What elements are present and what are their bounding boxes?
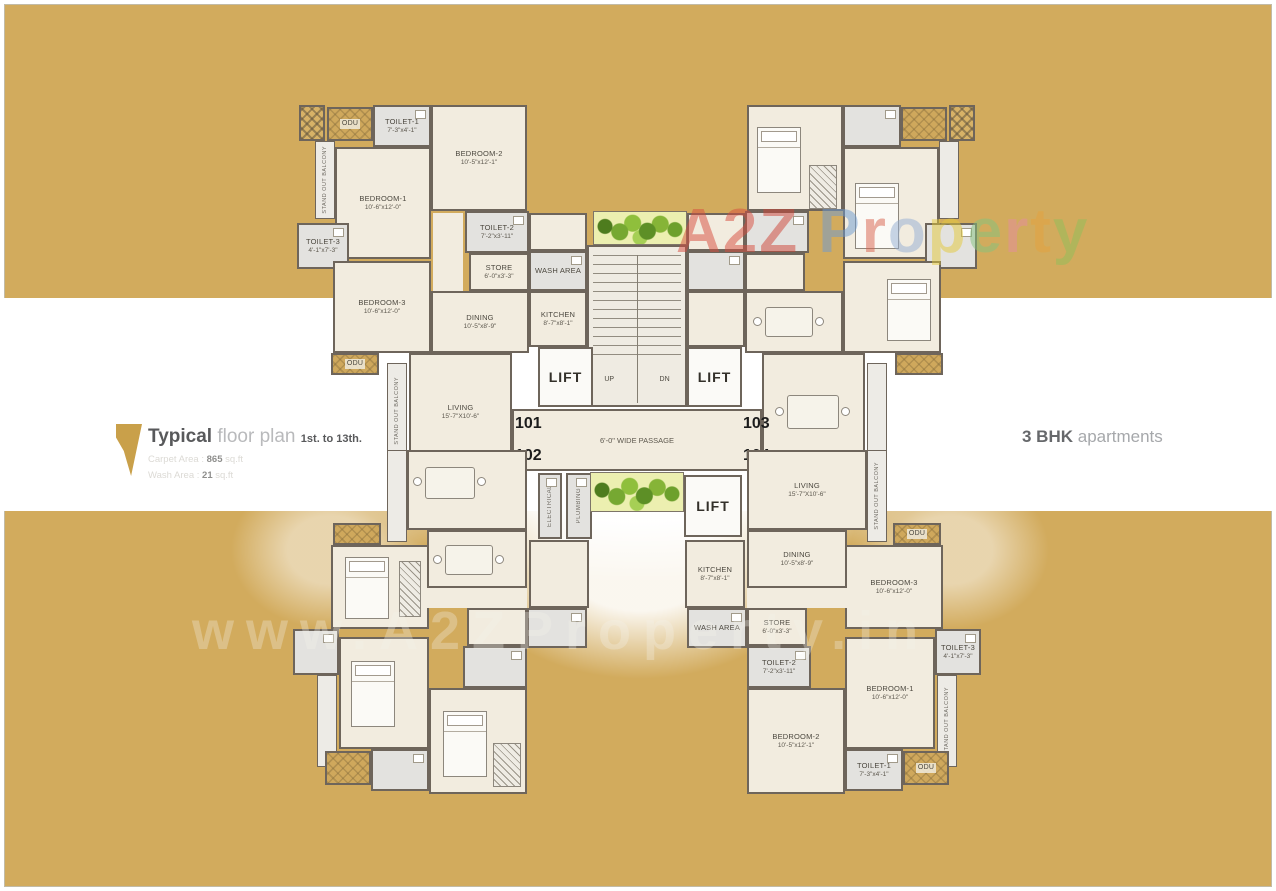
room-103-utility xyxy=(687,213,745,251)
balcony-101-a: STAND OUT BALCONY xyxy=(315,141,335,219)
carpet-area-value: 865 xyxy=(207,454,223,465)
room-label: ODU xyxy=(907,529,927,538)
room-label: KITCHEN xyxy=(698,565,732,575)
room-103-odu xyxy=(901,107,947,141)
room-label: KITCHEN xyxy=(541,310,575,320)
room-104-bedroom-1: BEDROOM-110'-6"x12'-0" xyxy=(845,637,935,749)
room-104-kitchen: KITCHEN8'-7"x8'-1" xyxy=(685,540,745,608)
room-label: STAND OUT BALCONY xyxy=(944,687,950,755)
room-dims: 6'-0"x3'-3" xyxy=(484,273,513,281)
room-101-store: STORE6'-0"x3'-3" xyxy=(469,253,529,291)
room-101-bedroom-1: BEDROOM-110'-6"x12'-0" xyxy=(335,147,431,259)
stair-treads xyxy=(593,255,681,363)
unit-number-101: 101 xyxy=(515,415,542,433)
lift-label: LIFT xyxy=(549,369,583,385)
wash-area-line: Wash Area : 21 sq.ft xyxy=(148,470,233,481)
room-label: LIVING xyxy=(448,403,474,413)
bed xyxy=(443,711,487,777)
room-101-wash-area: WASH AREA xyxy=(529,251,587,291)
chair xyxy=(815,317,824,326)
room-dims: 10'-6"x12'-0" xyxy=(876,588,912,596)
room-104-toilet-2: TOILET-27'-2"x3'-11" xyxy=(747,646,811,688)
balcony-104-a: STAND OUT BALCONY xyxy=(867,450,887,542)
chair xyxy=(413,477,422,486)
room-104-odu: ODU xyxy=(893,523,941,545)
plan-title-bold: Typical xyxy=(148,426,212,447)
balcony-103-b xyxy=(867,363,887,459)
room-dims: 10'-6"x12'-0" xyxy=(365,204,401,212)
table xyxy=(425,467,475,499)
hall-104 xyxy=(747,588,847,608)
room-label: LIVING xyxy=(794,481,820,491)
room-101-bedroom-2: BEDROOM-210'-5"x12'-1" xyxy=(431,105,527,211)
dining-table xyxy=(765,307,813,337)
room-104-living: LIVING15'-7"X10'-6" xyxy=(747,450,867,530)
wardrobe xyxy=(493,743,521,787)
chair xyxy=(433,555,442,564)
room-102-toilet-3 xyxy=(293,629,339,675)
room-102-store xyxy=(467,608,527,646)
room-101-utility xyxy=(529,213,587,251)
chair xyxy=(841,407,850,416)
hall-101 xyxy=(433,213,463,293)
stairs-up-label: UP xyxy=(604,376,614,383)
room-101-toilet-2: TOILET-27'-2"x3'-11" xyxy=(465,211,529,253)
room-104-bedroom-2: BEDROOM-210'-5"x12'-1" xyxy=(747,688,845,794)
room-102-kitchen xyxy=(529,540,589,608)
room-102-odu-2 xyxy=(325,751,371,785)
passage-label: 6'-0" WIDE PASSAGE xyxy=(600,436,674,445)
room-dims: 7'-2"x3'-11" xyxy=(763,668,795,676)
room-dims: 10'-5"x12'-1" xyxy=(778,742,814,750)
room-dims: 7'-2"x3'-11" xyxy=(481,233,513,241)
room-label: DINING xyxy=(466,313,493,323)
lift-bottom: LIFT xyxy=(684,475,742,537)
room-101-kitchen: KITCHEN8'-7"x8'-1" xyxy=(529,291,587,347)
balcony-102-a xyxy=(387,450,407,542)
room-label: ODU xyxy=(916,763,936,772)
room-dims: 10'-6"x12'-0" xyxy=(872,694,908,702)
room-dims: 8'-7"x8'-1" xyxy=(543,320,572,328)
apartments-label: apartments xyxy=(1073,427,1163,446)
electrical-shaft: ELECTRICAL xyxy=(538,473,562,539)
room-102-toilet-2 xyxy=(463,646,527,688)
room-104-toilet-3: TOILET-34'-1"x7'-3" xyxy=(935,629,981,675)
room-104-wash-area: WASH AREA xyxy=(687,608,747,648)
hall-102 xyxy=(427,588,527,608)
bed xyxy=(855,183,899,249)
room-label: BEDROOM-1 xyxy=(866,684,913,694)
room-label: ODU xyxy=(340,119,360,128)
room-dims: 6'-0"x3'-3" xyxy=(762,628,791,636)
chair xyxy=(753,317,762,326)
chair xyxy=(495,555,504,564)
bed xyxy=(351,661,395,727)
room-101-odu-2: ODU xyxy=(331,353,379,375)
plan-title-range: 1st. to 13th. xyxy=(301,433,362,445)
passage: 6'-0" WIDE PASSAGE xyxy=(512,409,762,471)
plumbing-shaft: PLUMBING xyxy=(566,473,592,539)
lift-label: LIFT xyxy=(696,498,730,514)
bhk-label: 3 BHK xyxy=(1022,427,1073,446)
shaft-label: ELECTRICAL xyxy=(547,485,553,527)
room-102-wash-area xyxy=(527,608,587,648)
room-label: TOILET-2 xyxy=(762,658,796,668)
room-label: BEDROOM-1 xyxy=(359,194,406,204)
room-label: TOILET-3 xyxy=(306,237,340,247)
brand-letter: r xyxy=(1004,197,1030,266)
room-label: TOILET-1 xyxy=(857,761,891,771)
chair xyxy=(775,407,784,416)
room-dims: 10'-5"x8'-9" xyxy=(464,323,497,331)
room-102-toilet-1 xyxy=(371,749,429,791)
room-103-store xyxy=(745,253,805,291)
room-dims: 7'-3"x4'-1" xyxy=(859,771,888,779)
room-label: STORE xyxy=(486,263,513,273)
wash-area-unit: sq.ft xyxy=(213,470,234,481)
balcony-103-a xyxy=(939,141,959,219)
room-103-kitchen xyxy=(687,291,745,347)
room-label: BEDROOM-2 xyxy=(772,732,819,742)
room-label: TOILET-3 xyxy=(941,643,975,653)
lift-label: LIFT xyxy=(698,369,732,385)
room-dims: 4'-1"x7'-3" xyxy=(943,653,972,661)
room-101-bedroom-3: BEDROOM-310'-6"x12'-0" xyxy=(333,261,431,353)
lift-top-left: LIFT xyxy=(538,347,593,407)
room-dims: 8'-7"x8'-1" xyxy=(700,575,729,583)
room-dims: 15'-7"X10'-6" xyxy=(788,491,825,499)
room-104-odu-2: ODU xyxy=(903,751,949,785)
room-label: STAND OUT BALCONY xyxy=(322,146,328,214)
brand-letter: y xyxy=(1053,197,1089,266)
floor-plan: ODU TOILET-17'-3"x4'-1" BEDROOM-210'-5"x… xyxy=(287,95,987,795)
chair xyxy=(477,477,486,486)
lift-top-right: LIFT xyxy=(687,347,742,407)
room-104-toilet-1: TOILET-17'-3"x4'-1" xyxy=(845,749,903,791)
unit-number-103: 103 xyxy=(743,415,770,433)
balcony-101-b: STAND OUT BALCONY xyxy=(387,363,407,459)
carpet-area-line: Carpet Area : 865 sq.ft xyxy=(148,454,243,465)
wardrobe xyxy=(809,165,837,209)
bed xyxy=(757,127,801,193)
wash-area-label: Wash Area : xyxy=(148,470,202,481)
stairs-dn-label: DN xyxy=(660,376,670,383)
duct-hatch xyxy=(949,105,975,141)
room-label: STAND OUT BALCONY xyxy=(394,377,400,445)
dining-table xyxy=(445,545,493,575)
room-104-store: STORE6'-0"x3'-3" xyxy=(747,608,807,646)
room-label: DINING xyxy=(783,550,810,560)
room-dims: 10'-5"x8'-9" xyxy=(781,560,814,568)
room-label: STAND OUT BALCONY xyxy=(874,462,880,530)
shaft-label: PLUMBING xyxy=(576,488,582,523)
room-dims: 4'-1"x7'-3" xyxy=(308,247,337,255)
duct-hatch xyxy=(299,105,325,141)
room-dims: 7'-3"x4'-1" xyxy=(387,127,416,135)
room-label: ODU xyxy=(345,359,365,368)
plan-title: Typical floor plan 1st. to 13th. xyxy=(148,426,362,448)
wash-area-value: 21 xyxy=(202,470,213,481)
room-dims: 10'-6"x12'-0" xyxy=(364,308,400,316)
room-101-toilet-1: TOILET-17'-3"x4'-1" xyxy=(373,105,431,147)
room-label: BEDROOM-3 xyxy=(358,298,405,308)
planter-bottom xyxy=(590,472,684,512)
room-label: WASH AREA xyxy=(694,623,740,633)
floor-plan-poster: ODU TOILET-17'-3"x4'-1" BEDROOM-210'-5"x… xyxy=(0,0,1276,891)
staircase: UP DN xyxy=(587,245,687,407)
room-101-odu: ODU xyxy=(327,107,373,141)
room-101-dining: DINING10'-5"x8'-9" xyxy=(431,291,529,353)
brand-letter: t xyxy=(1030,197,1053,266)
wardrobe xyxy=(399,561,421,617)
room-dims: 10'-5"x12'-1" xyxy=(461,159,497,167)
room-label: TOILET-2 xyxy=(480,223,514,233)
room-103-odu-2 xyxy=(895,353,943,375)
room-103-toilet-2 xyxy=(745,211,809,253)
room-dims: 15'-7"X10'-6" xyxy=(442,413,479,421)
room-102-odu xyxy=(333,523,381,545)
room-label: STORE xyxy=(764,618,791,628)
bed xyxy=(887,279,931,341)
room-label: BEDROOM-2 xyxy=(455,149,502,159)
room-104-dining: DINING10'-5"x8'-9" xyxy=(747,530,847,588)
carpet-area-unit: sq.ft xyxy=(222,454,243,465)
room-103-wash-area xyxy=(687,251,745,291)
plan-title-light: floor plan xyxy=(212,426,301,447)
apartment-type-caption: 3 BHK apartments xyxy=(1022,427,1163,447)
room-103-toilet-1 xyxy=(843,105,901,147)
room-label: WASH AREA xyxy=(535,266,581,276)
room-label: BEDROOM-3 xyxy=(870,578,917,588)
room-label: TOILET-1 xyxy=(385,117,419,127)
carpet-area-label: Carpet Area : xyxy=(148,454,207,465)
room-104-bedroom-3: BEDROOM-310'-6"x12'-0" xyxy=(845,545,943,629)
bed xyxy=(345,557,389,619)
table xyxy=(787,395,839,429)
planter-top xyxy=(593,211,687,245)
